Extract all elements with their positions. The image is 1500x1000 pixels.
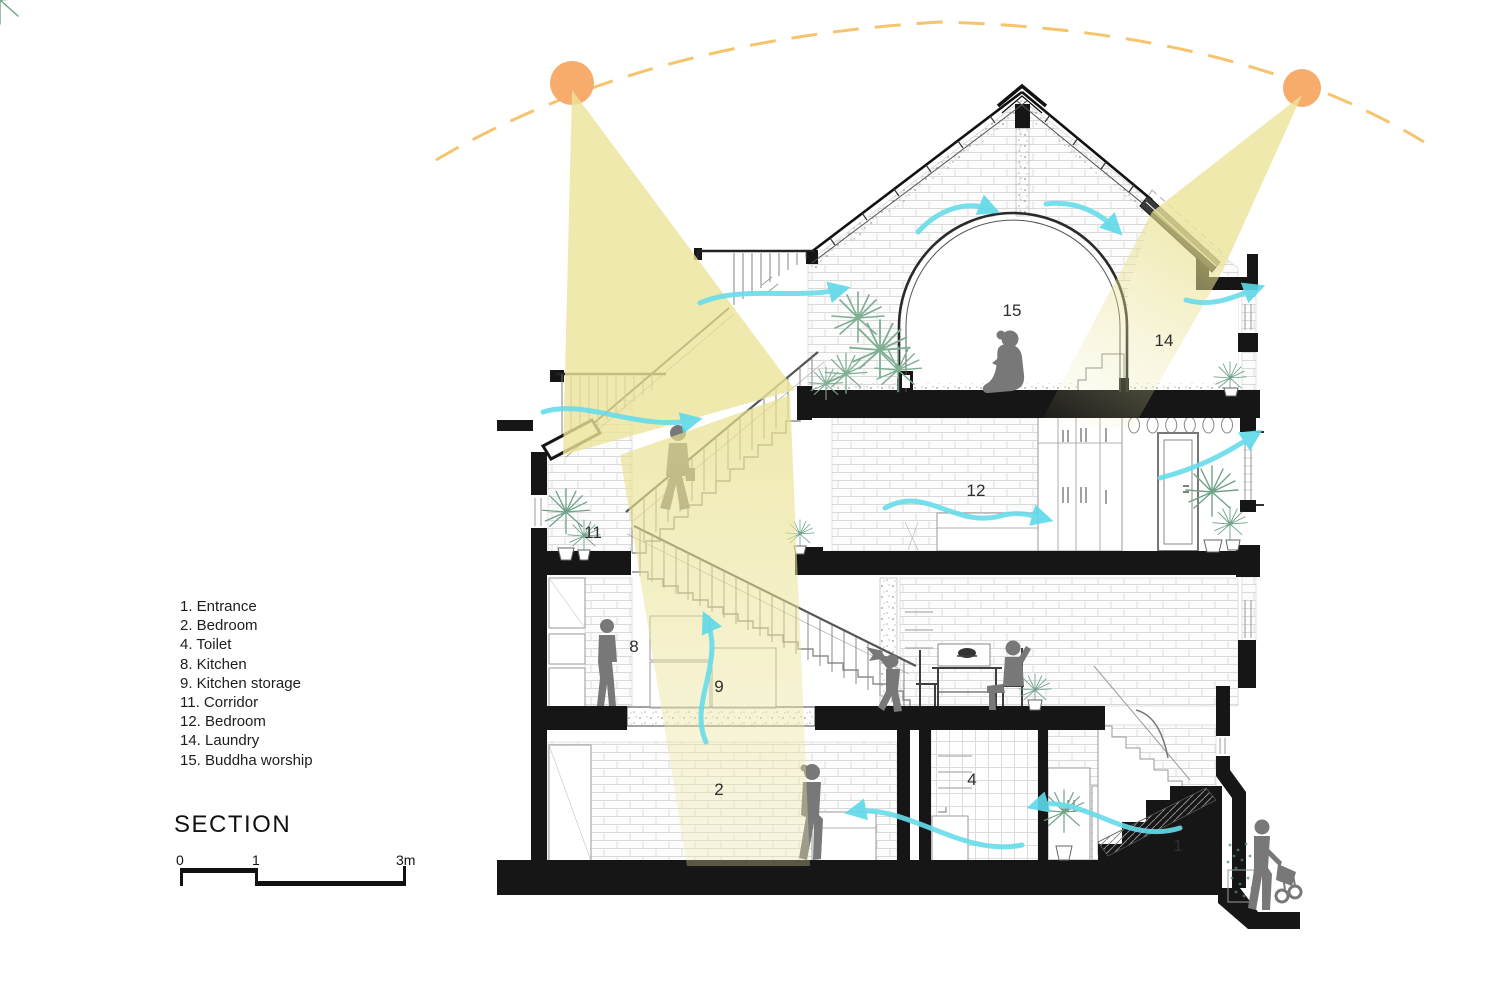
legend-item: 14. Laundry: [180, 731, 313, 750]
legend-item: 4. Toilet: [180, 635, 313, 654]
sun-icon-right: [1283, 69, 1321, 107]
legend-item: 2. Bedroom: [180, 616, 313, 635]
room-label-kitchen-storage: 9: [714, 677, 723, 696]
scale-bar-tick: [403, 866, 406, 886]
legend: 1. Entrance 2. Bedroom 4. Toilet 8. Kitc…: [180, 597, 313, 770]
room-label-bedroom-upper: 12: [967, 481, 986, 500]
legend-item: 15. Buddha worship: [180, 751, 313, 770]
legend-item: 1. Entrance: [180, 597, 313, 616]
legend-item: 8. Kitchen: [180, 655, 313, 674]
room-label-laundry: 14: [1155, 331, 1174, 350]
room-label-toilet: 4: [967, 770, 976, 789]
room-label-kitchen: 8: [629, 637, 638, 656]
figure-stroller: [1248, 820, 1301, 911]
legend-item: 12. Bedroom: [180, 712, 313, 731]
scale-bar-segment: [255, 881, 406, 886]
section-drawing: 15 14 12 11 8 9 2 4 1: [0, 0, 1500, 1000]
scale-tick-label: 0: [176, 852, 184, 868]
room-label-bedroom-ground: 2: [714, 780, 723, 799]
drawing-title: SECTION: [174, 811, 291, 839]
room-label-buddha-worship: 15: [1003, 301, 1022, 320]
room-label-corridor: 11: [584, 523, 602, 542]
architectural-section-sheet: 15 14 12 11 8 9 2 4 1 1. Entrance 2. Bed…: [0, 0, 1500, 1000]
scale-tick-label: 1: [252, 852, 260, 868]
scale-bar-segment: [180, 868, 258, 873]
legend-item: 9. Kitchen storage: [180, 674, 313, 693]
room-label-entrance: 1: [1173, 836, 1182, 855]
legend-item: 11. Corridor: [180, 693, 313, 712]
